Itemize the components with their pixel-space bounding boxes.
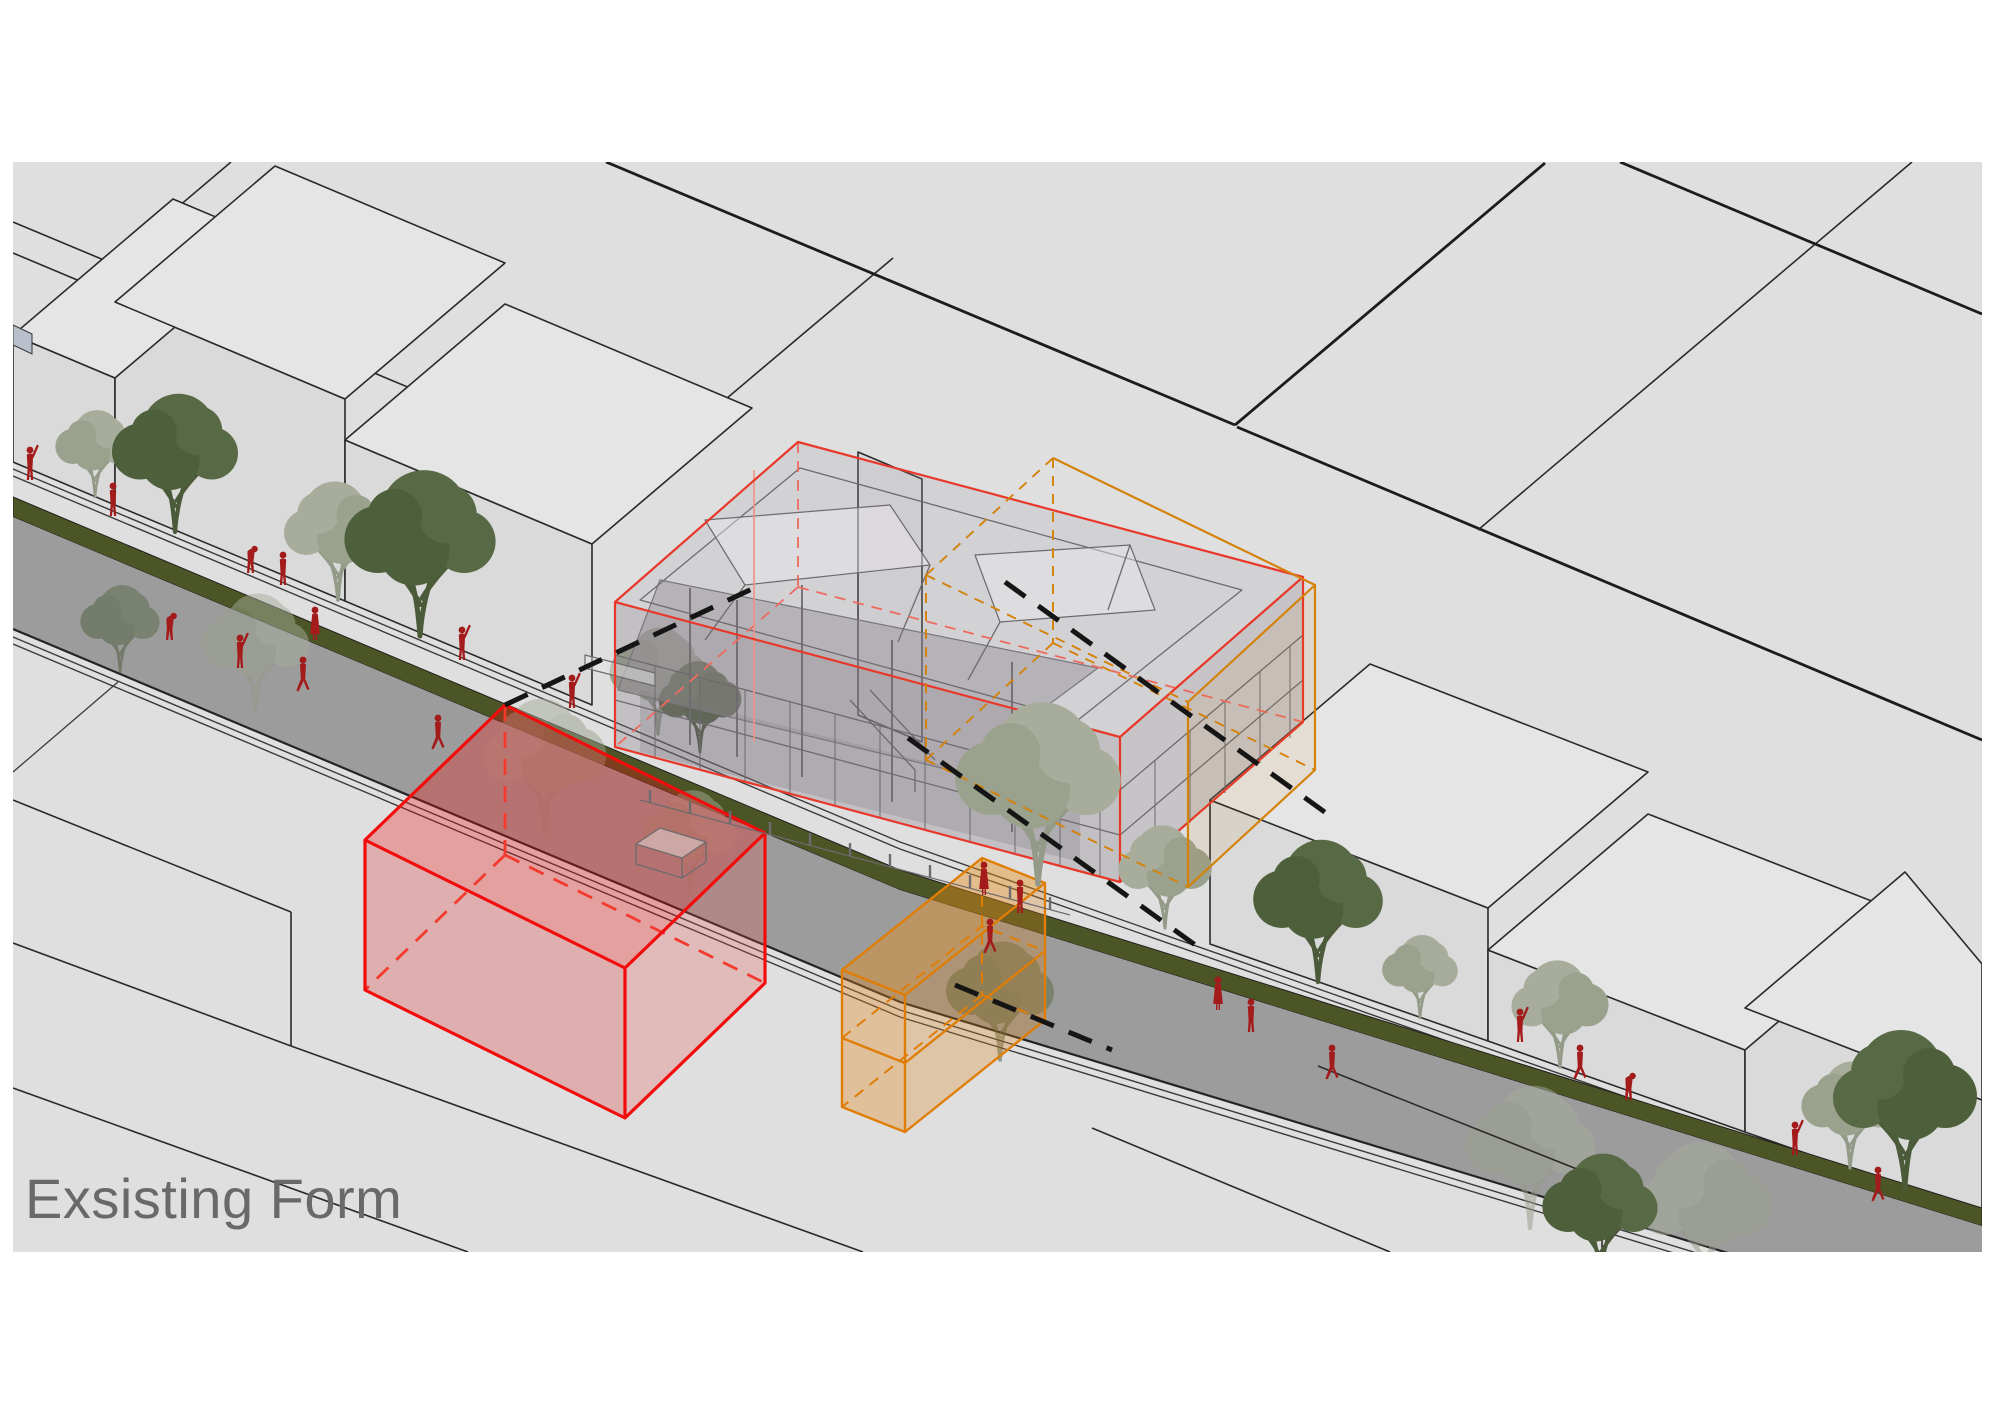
- diagram-page: Exsisting Form: [0, 0, 2000, 1414]
- site-axonometric-drawing: Exsisting Form: [0, 0, 2000, 1414]
- page-title: Exsisting Form: [25, 1167, 402, 1230]
